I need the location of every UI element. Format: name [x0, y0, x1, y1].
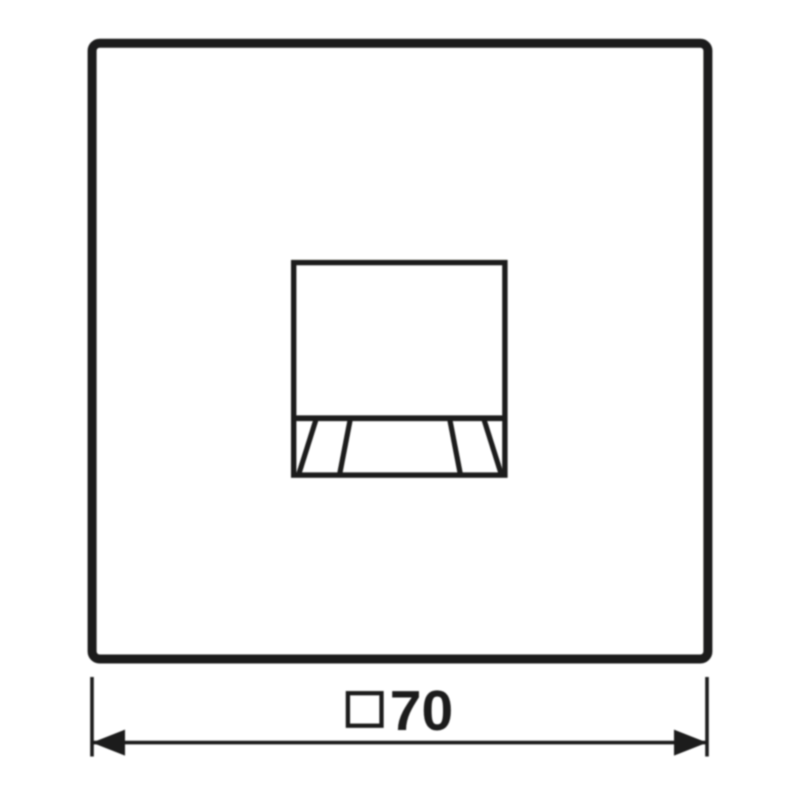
svg-text:70: 70: [390, 679, 453, 743]
